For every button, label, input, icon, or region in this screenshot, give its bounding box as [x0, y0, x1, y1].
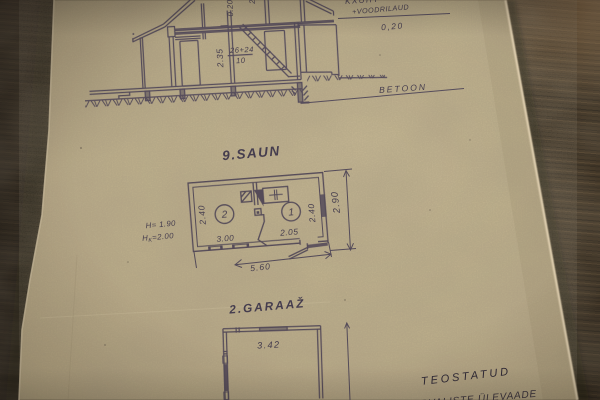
svg-text:2.50: 2.50	[247, 0, 257, 5]
svg-text:2.40: 2.40	[196, 204, 208, 226]
svg-text:3.00: 3.00	[216, 234, 234, 244]
svg-text:0.20: 0.20	[225, 0, 235, 17]
svg-text:2.40: 2.40	[306, 203, 318, 224]
svg-text:2: 2	[220, 210, 228, 222]
svg-text:1: 1	[288, 207, 294, 218]
svg-text:10: 10	[236, 56, 246, 65]
svg-text:26+24: 26+24	[229, 45, 254, 55]
svg-text:2.35: 2.35	[214, 48, 225, 69]
svg-text:0,20: 0,20	[381, 20, 404, 32]
svg-text:2.05: 2.05	[279, 226, 299, 237]
svg-text:3.42: 3.42	[257, 339, 281, 350]
